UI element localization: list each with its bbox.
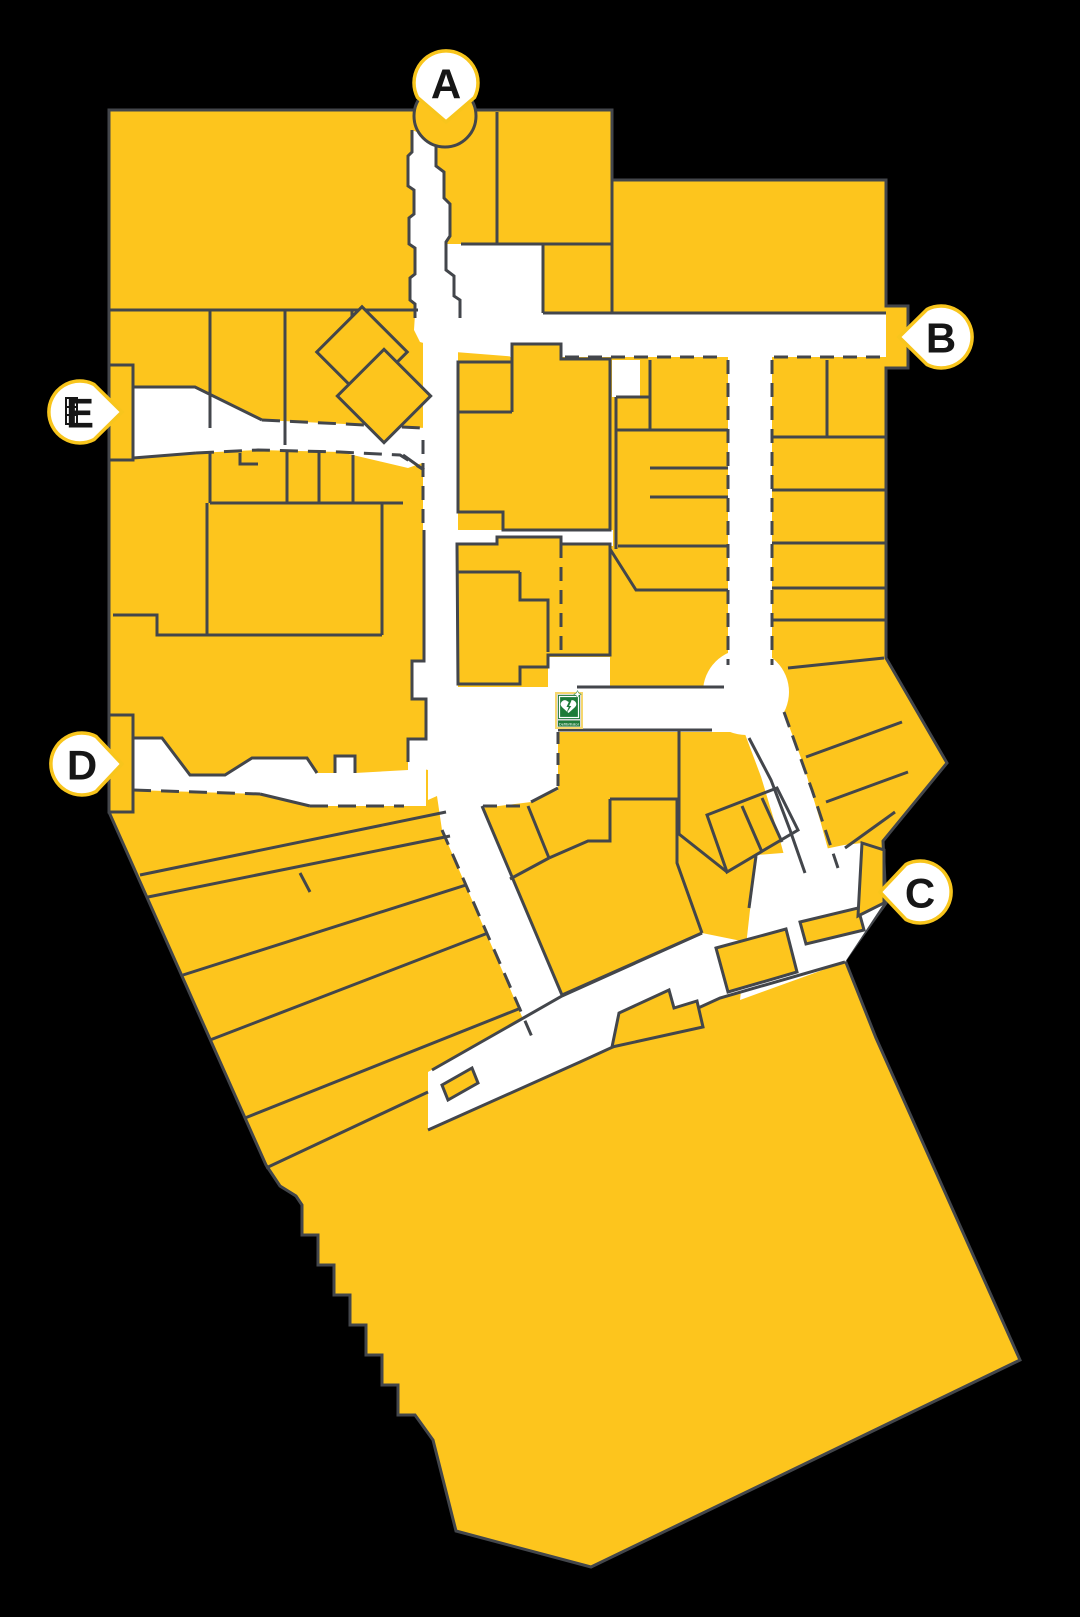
svg-text:Defibrillator: Defibrillator <box>559 722 580 727</box>
svg-text:A: A <box>431 61 461 108</box>
svg-text:D: D <box>67 742 97 789</box>
svg-text:C: C <box>905 870 935 917</box>
svg-text:B: B <box>926 315 956 362</box>
svg-text:E: E <box>66 390 94 437</box>
